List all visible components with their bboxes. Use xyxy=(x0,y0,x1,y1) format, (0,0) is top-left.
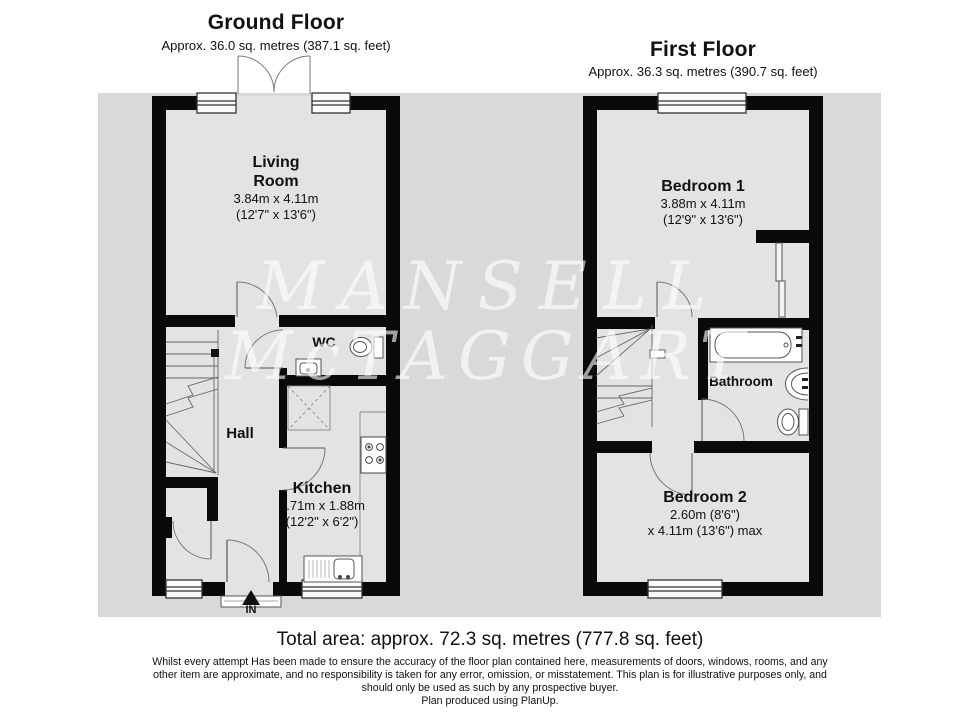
window-icon xyxy=(312,93,350,113)
room-name: Kitchen xyxy=(242,479,402,498)
window-icon xyxy=(197,93,236,113)
wc-basin-icon xyxy=(296,359,321,376)
room-dims-metric: 3.88m x 4.11m xyxy=(603,196,803,212)
footer-disclaimer: Whilst every attempt Has been made to en… xyxy=(150,656,830,708)
newel-post xyxy=(211,349,219,357)
hall-label: Hall xyxy=(210,425,270,442)
room-dims-imperial: (12'2" x 6'2") xyxy=(242,514,402,530)
living-room-label: Living Room 3.84m x 4.11m (12'7" x 13'6"… xyxy=(176,153,376,223)
window-icon xyxy=(302,580,362,598)
toilet-icon xyxy=(350,337,383,358)
bathtub-icon xyxy=(710,328,802,362)
first-floor-title: First Floor xyxy=(543,38,863,62)
ground-floor-subtitle: Approx. 36.0 sq. metres (387.1 sq. feet) xyxy=(116,38,436,53)
window-icon xyxy=(658,93,746,113)
room-name: Bedroom 1 xyxy=(603,177,803,196)
wc-label: WC xyxy=(300,334,348,350)
stove-icon xyxy=(361,437,386,473)
first-floor-subtitle: Approx. 36.3 sq. metres (390.7 sq. feet) xyxy=(543,64,863,79)
disclaimer-text: Whilst every attempt Has been made to en… xyxy=(150,656,830,694)
room-dims-imperial: (12'9" x 13'6") xyxy=(603,212,803,228)
bathroom-label: Bathroom xyxy=(701,374,781,389)
newel-post xyxy=(650,350,665,358)
room-dims-metric: 3.71m x 1.88m xyxy=(242,498,402,514)
toilet-icon xyxy=(778,409,809,435)
room-name: Living xyxy=(176,153,376,172)
window-icon xyxy=(166,580,202,598)
bedroom2-label: Bedroom 2 2.60m (8'6") x 4.11m (13'6") m… xyxy=(605,488,805,539)
kitchen-sink-icon xyxy=(304,556,362,582)
kitchen-label: Kitchen 3.71m x 1.88m (12'2" x 6'2") xyxy=(242,479,402,530)
room-name: Room xyxy=(176,172,376,191)
floorplan-graphics xyxy=(0,0,980,712)
room-dims-metric: 3.84m x 4.11m xyxy=(176,191,376,207)
produced-by-text: Plan produced using PlanUp. xyxy=(150,695,830,708)
room-dims-imperial: (12'7" x 13'6") xyxy=(176,207,376,223)
room-name: Bedroom 2 xyxy=(605,488,805,507)
floorplan-page: Ground Floor Approx. 36.0 sq. metres (38… xyxy=(0,0,980,712)
window-icon xyxy=(648,580,722,598)
french-doors-icon xyxy=(238,56,310,94)
bedroom1-label: Bedroom 1 3.88m x 4.11m (12'9" x 13'6") xyxy=(603,177,803,228)
room-dims-line2: x 4.11m (13'6") max xyxy=(605,523,805,539)
entrance-in-label: IN xyxy=(236,604,266,616)
ground-floor-title: Ground Floor xyxy=(116,11,436,35)
total-area-text: Total area: approx. 72.3 sq. metres (777… xyxy=(0,629,980,651)
room-dims-line1: 2.60m (8'6") xyxy=(605,507,805,523)
